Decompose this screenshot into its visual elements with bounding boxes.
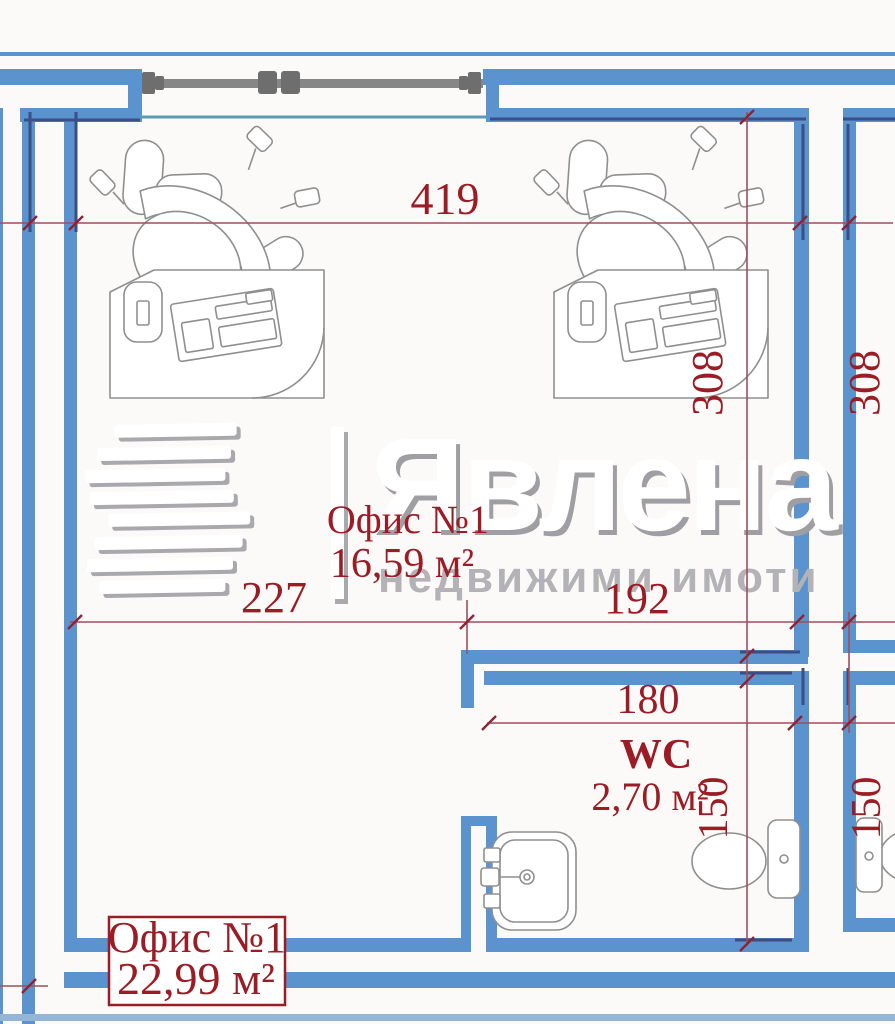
dim-office-height: 308 (683, 350, 732, 416)
dim-adjacent-wc-depth: 150 (844, 777, 890, 840)
floorplan-canvas: Явлена Явлена недвижими имоти (0, 0, 895, 1024)
desk (554, 270, 768, 398)
office-top-name: Офис №1 (327, 497, 489, 542)
window-end-cap-right (468, 72, 481, 94)
exterior-face-line (0, 52, 895, 56)
bottom-edge-line (0, 1014, 895, 1021)
dim-left-segment: 227 (241, 573, 307, 622)
sink (481, 832, 576, 930)
office-left-wall (64, 108, 77, 952)
wc-door-jamb (461, 650, 474, 708)
floorplan-drawing: Явлена Явлена недвижими имоти (0, 0, 895, 1024)
wc-name: WC (620, 732, 692, 778)
adjacent-wc-bottom-stub (843, 918, 895, 932)
left-outer-wall (22, 108, 35, 1024)
window-coupler-left (258, 71, 277, 94)
desk (110, 270, 324, 398)
wc-right-wall (794, 671, 809, 952)
wc-left-wall-cavity (471, 826, 486, 952)
office-top-area: 16,59 м² (330, 541, 474, 587)
office-bottom-area: 22,99 м² (117, 953, 275, 1004)
adjacent-room-mid-stub (843, 640, 895, 653)
window-end-cap-left (142, 72, 155, 94)
window-mullion-bar (142, 79, 483, 88)
window-coupler-right (281, 71, 300, 94)
exterior-wall-top-right (483, 69, 895, 85)
window-end-nub-left (155, 76, 164, 90)
window-end-nub-right (459, 76, 468, 90)
dim-top-width: 419 (411, 173, 480, 224)
wc-area: 2,70 м² (591, 774, 708, 819)
exterior-wall-top-left (0, 69, 142, 85)
dim-wc-width: 180 (617, 677, 680, 723)
left-edge-line (0, 108, 3, 1024)
dim-right-segment: 192 (604, 574, 670, 623)
office-bottom-label: Офис №1 22,99 м² (108, 913, 286, 1005)
adjacent-wc-top-stub (843, 671, 895, 685)
dim-adjacent-room-height: 308 (840, 350, 889, 416)
